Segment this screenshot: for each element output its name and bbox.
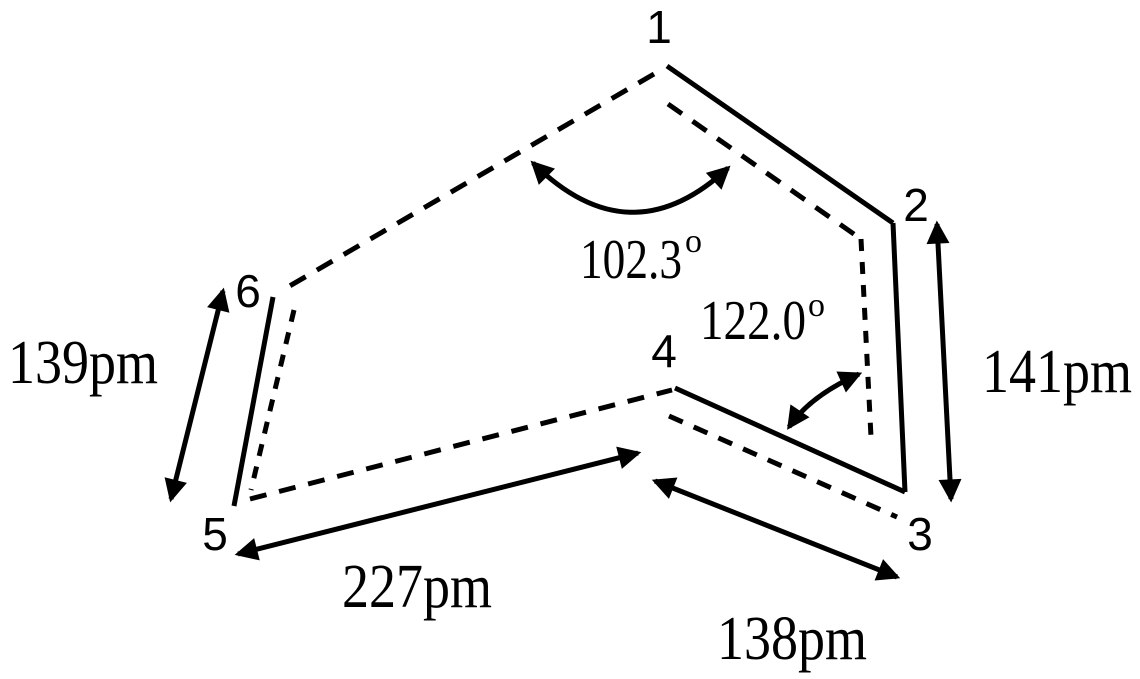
bond-length-label-227pm: 227pm: [342, 553, 492, 621]
shadow-1-2-dashed: [668, 104, 861, 239]
bond-5-4-dashed: [250, 390, 672, 499]
atom-label-6: 6: [235, 265, 261, 317]
arrow-141pm: [937, 224, 951, 499]
atom-label-2: 2: [903, 179, 929, 231]
angle-label-102: 102.3: [580, 229, 682, 291]
angle-arc-102: [533, 163, 728, 212]
angle-label-122: 122.0: [700, 290, 806, 352]
shadow-6-5-dashed: [251, 310, 294, 490]
arrow-138pm: [655, 481, 897, 577]
angle-degree-sup-122: o: [808, 287, 825, 324]
bond-length-label-138pm: 138pm: [717, 605, 867, 673]
angle-degree-sup-102: o: [685, 223, 702, 260]
shadow-2-3-dashed: [861, 239, 871, 437]
atom-label-5: 5: [202, 508, 228, 560]
atom-label-3: 3: [907, 508, 933, 560]
bond-length-label-139pm: 139pm: [8, 329, 158, 397]
angle-arc-122: [789, 374, 859, 427]
bond-length-label-141pm: 141pm: [982, 338, 1132, 406]
atom-label-4: 4: [651, 325, 677, 377]
bond-1-2: [667, 66, 893, 223]
bond-2-3: [893, 223, 905, 492]
arrow-227pm: [238, 453, 638, 554]
arrow-139pm: [171, 291, 223, 499]
figure-canvas: 139pm 141pm 227pm 138pm 102.3 o 122.0 o …: [0, 0, 1140, 679]
molecule-structure-svg: 139pm 141pm 227pm 138pm 102.3 o 122.0 o …: [0, 0, 1140, 679]
atom-label-1: 1: [646, 1, 672, 53]
